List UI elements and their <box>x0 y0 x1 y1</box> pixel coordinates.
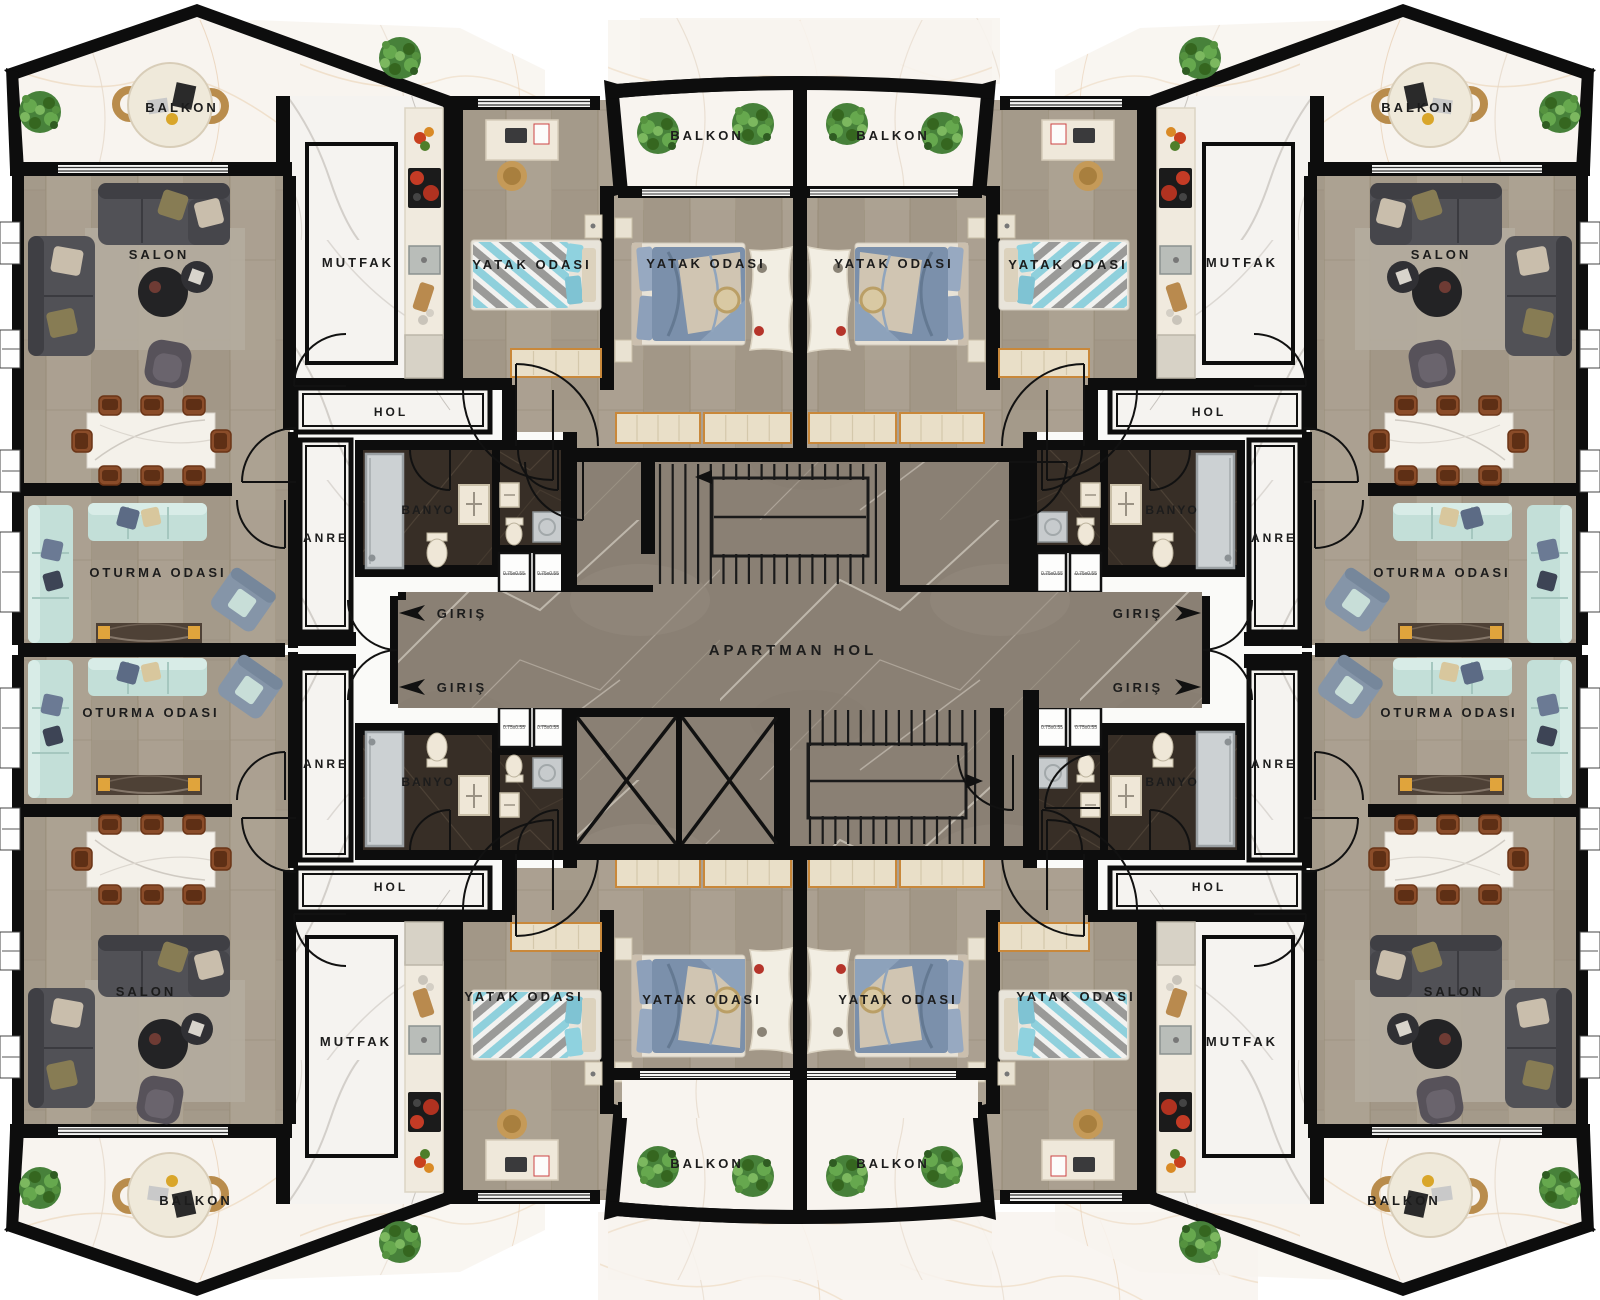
svg-text:BANYO: BANYO <box>401 503 454 517</box>
svg-text:ANRE: ANRE <box>1251 531 1297 545</box>
svg-text:BALKON: BALKON <box>159 1193 233 1208</box>
svg-text:BALKON: BALKON <box>145 100 219 115</box>
svg-text:OTURMA ODASI: OTURMA ODASI <box>89 565 226 580</box>
svg-text:MUTFAK: MUTFAK <box>1206 255 1278 270</box>
svg-text:YATAK ODASI: YATAK ODASI <box>838 992 957 1007</box>
svg-text:APARTMAN HOL: APARTMAN HOL <box>709 642 878 659</box>
svg-text:YATAK ODASI: YATAK ODASI <box>464 989 583 1004</box>
svg-text:0.75x0.55: 0.75x0.55 <box>537 725 559 731</box>
svg-text:HOL: HOL <box>1192 405 1226 419</box>
svg-text:YATAK ODASI: YATAK ODASI <box>642 992 761 1007</box>
svg-text:BALKON: BALKON <box>1381 100 1455 115</box>
svg-text:OTURMA ODASI: OTURMA ODASI <box>1373 565 1510 580</box>
svg-text:BALKON: BALKON <box>670 128 744 143</box>
svg-text:YATAK ODASI: YATAK ODASI <box>834 256 953 271</box>
svg-text:YATAK ODASI: YATAK ODASI <box>472 257 591 272</box>
svg-text:MUTFAK: MUTFAK <box>322 255 394 270</box>
svg-text:YATAK ODASI: YATAK ODASI <box>646 256 765 271</box>
svg-text:0.75x0.55: 0.75x0.55 <box>1041 571 1063 577</box>
svg-text:BALKON: BALKON <box>1367 1193 1441 1208</box>
svg-text:BANYO: BANYO <box>401 775 454 789</box>
svg-text:0.75x0.55: 0.75x0.55 <box>537 571 559 577</box>
svg-text:ANRE: ANRE <box>303 531 349 545</box>
svg-text:BANYO: BANYO <box>1145 503 1198 517</box>
svg-text:HOL: HOL <box>1192 880 1226 894</box>
svg-text:0.75x0.55: 0.75x0.55 <box>503 725 525 731</box>
svg-text:HOL: HOL <box>374 880 408 894</box>
svg-text:BANYO: BANYO <box>1145 775 1198 789</box>
svg-text:MUTFAK: MUTFAK <box>320 1034 392 1049</box>
svg-text:0.75x0.55: 0.75x0.55 <box>503 571 525 577</box>
svg-text:BALKON: BALKON <box>670 1156 744 1171</box>
svg-text:0.75x0.55: 0.75x0.55 <box>1041 725 1063 731</box>
svg-text:HOL: HOL <box>374 405 408 419</box>
svg-text:YATAK ODASI: YATAK ODASI <box>1008 257 1127 272</box>
svg-text:SALON: SALON <box>1411 247 1472 262</box>
svg-text:SALON: SALON <box>129 247 190 262</box>
svg-text:0.75x0.55: 0.75x0.55 <box>1075 571 1097 577</box>
svg-text:ANRE: ANRE <box>303 757 349 771</box>
svg-text:GIRIŞ: GIRIŞ <box>437 680 487 695</box>
svg-text:GIRIŞ: GIRIŞ <box>1113 606 1163 621</box>
svg-text:OTURMA ODASI: OTURMA ODASI <box>82 705 219 720</box>
svg-text:SALON: SALON <box>1424 984 1485 999</box>
svg-text:BALKON: BALKON <box>856 1156 930 1171</box>
svg-text:ANRE: ANRE <box>1251 757 1297 771</box>
svg-text:0.75x0.55: 0.75x0.55 <box>1075 725 1097 731</box>
svg-text:GIRIŞ: GIRIŞ <box>437 606 487 621</box>
svg-text:OTURMA ODASI: OTURMA ODASI <box>1380 705 1517 720</box>
svg-text:SALON: SALON <box>116 984 177 999</box>
svg-text:YATAK ODASI: YATAK ODASI <box>1016 989 1135 1004</box>
svg-text:MUTFAK: MUTFAK <box>1206 1034 1278 1049</box>
svg-text:BALKON: BALKON <box>856 128 930 143</box>
svg-text:GIRIŞ: GIRIŞ <box>1113 680 1163 695</box>
